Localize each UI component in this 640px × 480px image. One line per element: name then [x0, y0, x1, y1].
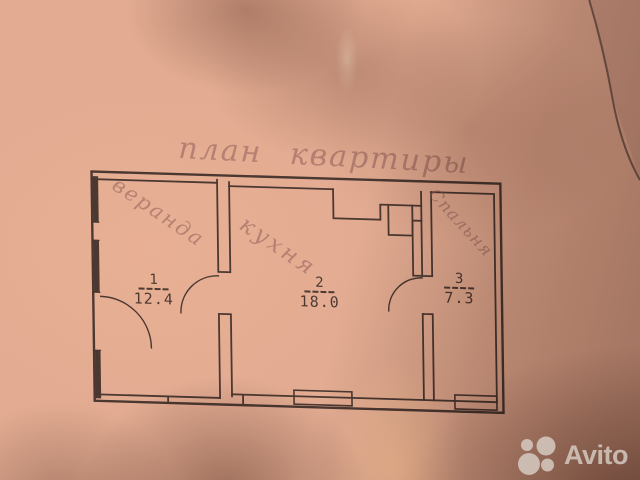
- room-label-kitchen: 2 18.0: [299, 275, 340, 311]
- floor-plan-drawing: веранда кухня Спальня 1 12.4 2 18.0 3 7.…: [90, 170, 505, 414]
- kitchen-bedroom-wall-lower: [423, 314, 434, 400]
- room-area: 7.3: [444, 289, 475, 308]
- avito-watermark: Avito: [516, 434, 628, 476]
- duct-step-block: [333, 189, 421, 221]
- room-area: 18.0: [299, 292, 339, 311]
- room-area: 12.4: [134, 289, 174, 308]
- veranda-kitchen-wall-upper: [217, 180, 230, 272]
- avito-brand-text: Avito: [564, 440, 628, 471]
- room-number: 2: [304, 275, 335, 293]
- kitchen-door-arc: [180, 275, 219, 314]
- room-number: 1: [138, 272, 169, 290]
- avito-logo-icon: [516, 434, 560, 476]
- room-number: 3: [444, 272, 475, 290]
- room-label-veranda: 1 12.4: [133, 272, 174, 308]
- room-label-bedroom: 3 7.3: [444, 272, 475, 308]
- bedroom-door-arc: [388, 277, 422, 312]
- duct-small-box: [388, 205, 412, 236]
- photo-of-floor-plan: { "photo": { "description": "photograph …: [0, 0, 640, 480]
- veranda-kitchen-wall-lower: [219, 314, 232, 398]
